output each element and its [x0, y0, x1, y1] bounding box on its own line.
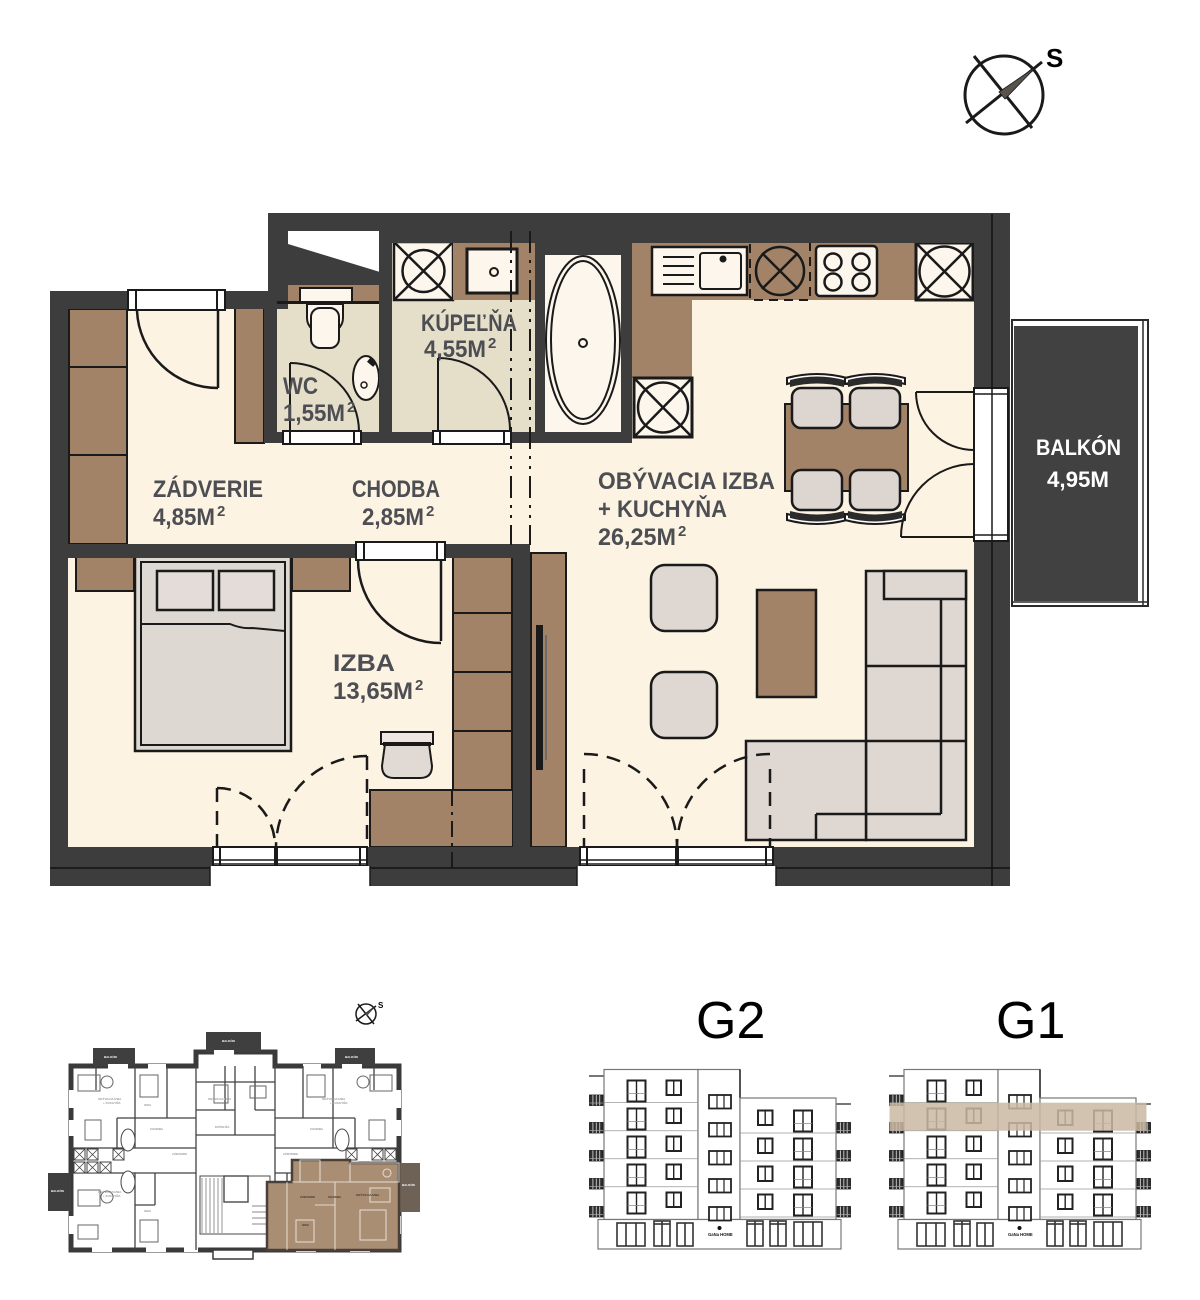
svg-text:2: 2	[347, 399, 355, 416]
svg-text:IZBA: IZBA	[144, 1209, 152, 1213]
svg-text:26,25M: 26,25M	[598, 524, 676, 551]
svg-text:CHODBA: CHODBA	[328, 1195, 342, 1199]
svg-text:GaNa HOME: GaNa HOME	[708, 1232, 733, 1237]
svg-text:ZÁDVERIE: ZÁDVERIE	[153, 475, 263, 503]
svg-text:4,85M: 4,85M	[153, 504, 215, 531]
svg-text:IZBA: IZBA	[333, 650, 395, 677]
svg-text:2: 2	[426, 503, 434, 520]
svg-text:BALKÓN: BALKÓN	[345, 1054, 358, 1059]
svg-text:CHODBA: CHODBA	[352, 476, 440, 503]
svg-text:4,55M: 4,55M	[424, 336, 486, 363]
svg-text:GaNa HOME: GaNa HOME	[1008, 1232, 1033, 1237]
svg-text:ZÁDVERIE: ZÁDVERIE	[300, 1194, 315, 1199]
svg-text:KÚPEĽŇA: KÚPEĽŇA	[215, 1124, 230, 1129]
svg-text:2: 2	[678, 523, 686, 540]
svg-text:OBÝVACIA IZBA: OBÝVACIA IZBA	[356, 1192, 380, 1197]
svg-text:IZBA: IZBA	[144, 1103, 152, 1107]
svg-text:+ KUCHYŇA: + KUCHYŇA	[330, 1100, 348, 1105]
svg-text:+ KUCHYŇA: + KUCHYŇA	[103, 1193, 121, 1198]
svg-text:WC: WC	[283, 373, 318, 400]
svg-text:BALKÓN: BALKÓN	[402, 1182, 415, 1187]
svg-text:CHODBA: CHODBA	[150, 1127, 164, 1131]
svg-text:S: S	[378, 1001, 384, 1010]
svg-text:2,85M: 2,85M	[362, 504, 424, 531]
svg-text:2: 2	[488, 335, 496, 352]
svg-text:BALKÓN: BALKÓN	[222, 1038, 235, 1043]
svg-text:KÚPEĽŇA: KÚPEĽŇA	[421, 309, 517, 337]
svg-text:OBÝVACIA IZBA: OBÝVACIA IZBA	[598, 467, 775, 495]
svg-text:OBÝVACIA IZBA: OBÝVACIA IZBA	[208, 1096, 232, 1101]
svg-text:1,55M: 1,55M	[283, 400, 345, 427]
svg-text:G1: G1	[996, 992, 1065, 1050]
svg-text:BALKÓN: BALKÓN	[1036, 435, 1121, 460]
svg-text:2: 2	[217, 503, 225, 520]
svg-text:+ KUCHYŇA: + KUCHYŇA	[103, 1100, 121, 1105]
svg-text:BALKÓN: BALKÓN	[51, 1188, 64, 1193]
svg-text:S: S	[1046, 43, 1063, 73]
svg-text:4,95M: 4,95M	[1047, 467, 1109, 492]
svg-text:ZÁDVERIE: ZÁDVERIE	[283, 1151, 298, 1156]
svg-text:CHODBA: CHODBA	[310, 1127, 324, 1131]
svg-text:ZÁDVERIE: ZÁDVERIE	[172, 1151, 187, 1156]
svg-text:IZBA: IZBA	[302, 1223, 310, 1227]
svg-text:2: 2	[415, 677, 423, 694]
svg-text:G2: G2	[696, 992, 765, 1050]
svg-text:BALKÓN: BALKÓN	[104, 1054, 117, 1059]
svg-text:+ KUCHYŇA: + KUCHYŇA	[598, 495, 727, 523]
svg-text:13,65M: 13,65M	[333, 678, 413, 705]
